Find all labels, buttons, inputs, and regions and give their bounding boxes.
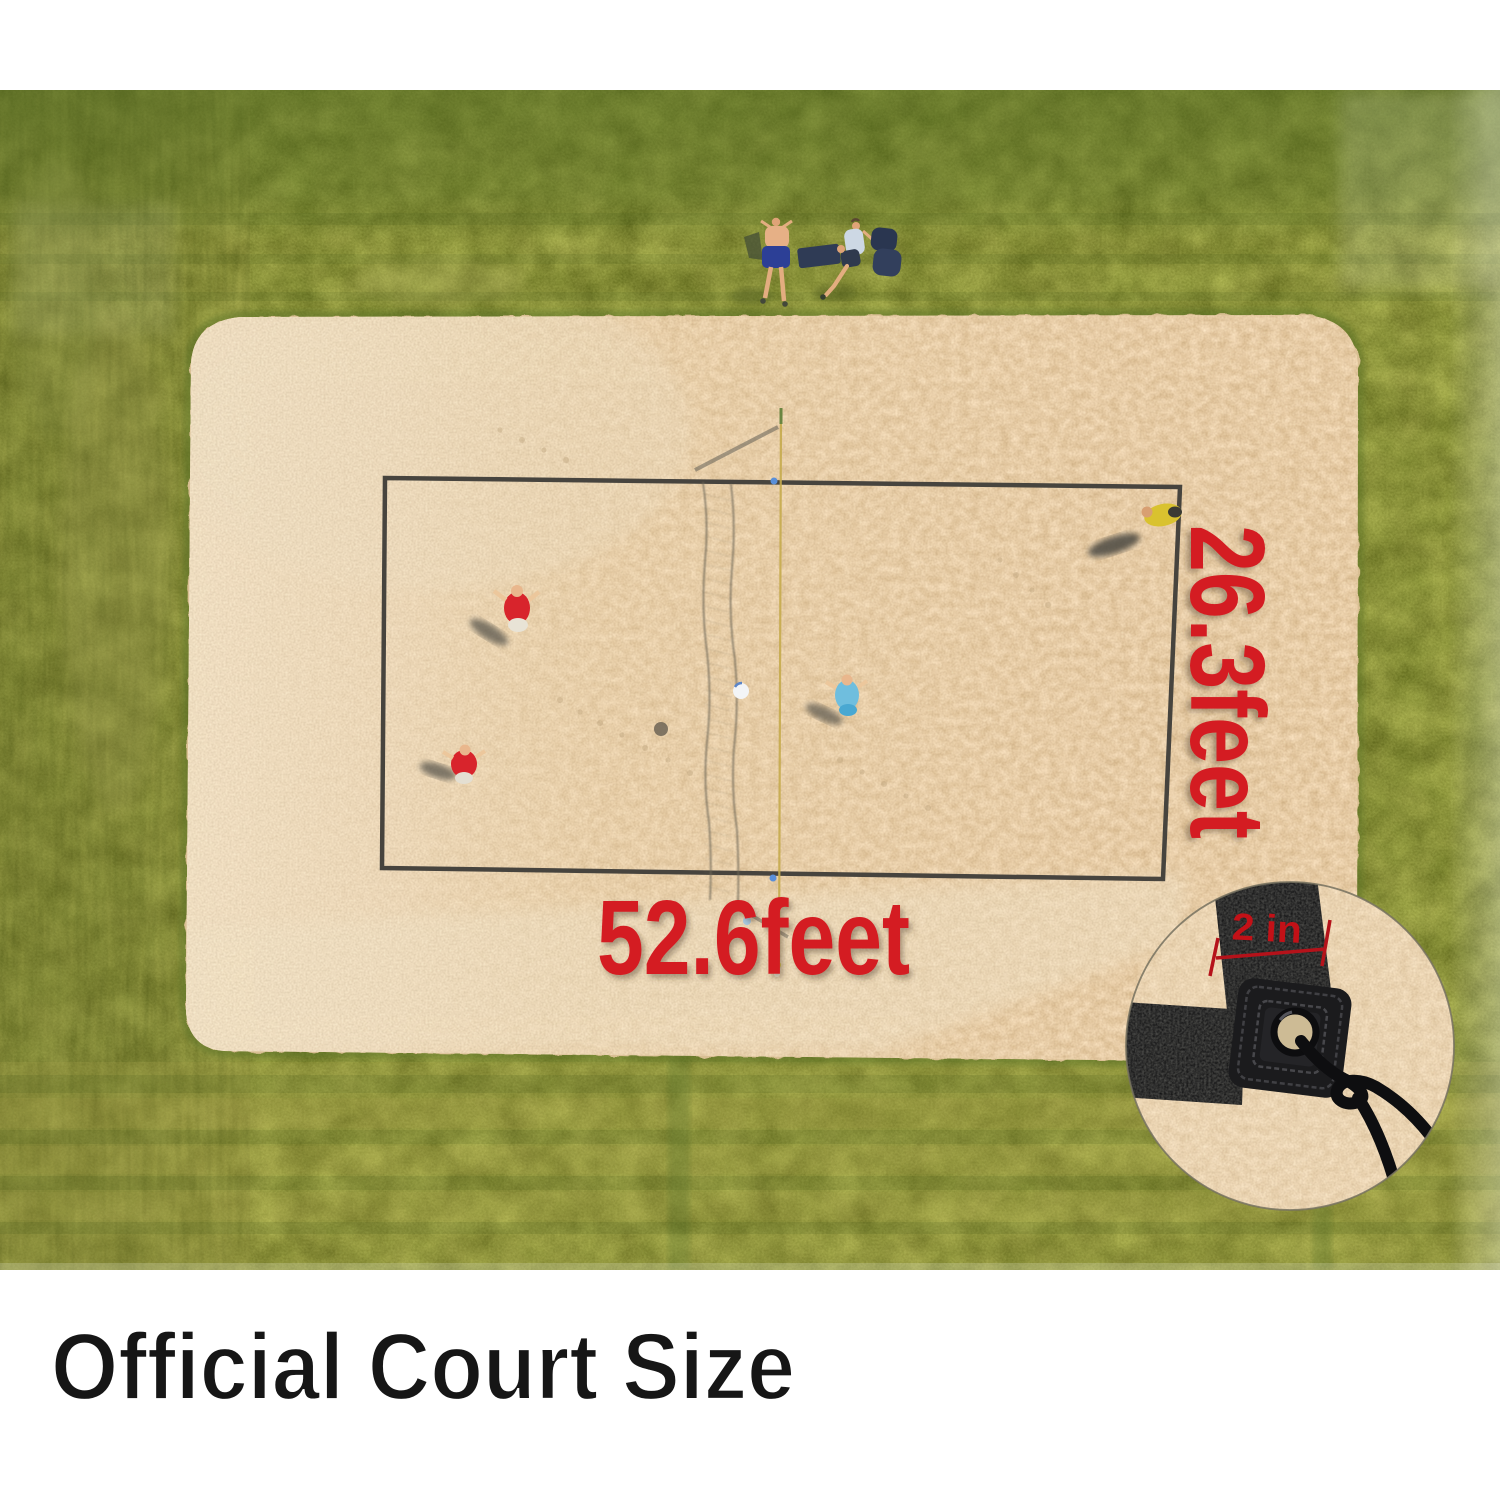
svg-text:26.3feet: 26.3feet	[1168, 525, 1286, 839]
svg-text:2 in: 2 in	[1231, 906, 1303, 952]
svg-text:52.6feet: 52.6feet	[597, 879, 910, 997]
svg-text:Official Court Size: Official Court Size	[51, 1314, 795, 1420]
